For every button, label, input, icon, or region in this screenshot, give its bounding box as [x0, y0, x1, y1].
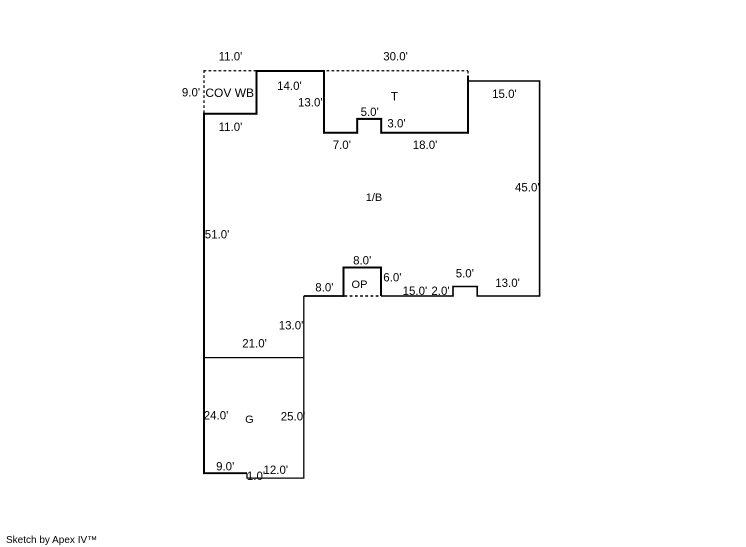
svg-text:1.0': 1.0' — [247, 471, 265, 483]
svg-text:24.0': 24.0' — [204, 410, 229, 422]
svg-text:1/B: 1/B — [366, 192, 383, 204]
svg-text:45.0': 45.0' — [515, 183, 540, 195]
svg-text:11.0': 11.0' — [219, 52, 243, 64]
svg-text:8.0': 8.0' — [353, 255, 371, 267]
svg-text:13.0': 13.0' — [495, 278, 520, 290]
svg-text:G: G — [245, 414, 254, 426]
svg-text:21.0': 21.0' — [242, 339, 267, 351]
svg-text:30.0': 30.0' — [383, 52, 408, 64]
svg-text:OP: OP — [352, 279, 368, 291]
svg-text:13.0': 13.0' — [298, 97, 323, 109]
svg-text:13.0': 13.0' — [279, 321, 304, 333]
svg-text:11.0': 11.0' — [219, 122, 243, 134]
svg-text:25.0': 25.0' — [281, 412, 306, 424]
svg-text:5.0': 5.0' — [456, 269, 474, 281]
svg-text:7.0': 7.0' — [333, 140, 351, 152]
svg-text:9.0': 9.0' — [182, 88, 200, 100]
svg-text:14.0': 14.0' — [277, 81, 302, 93]
svg-text:8.0': 8.0' — [315, 283, 333, 295]
svg-text:15.0': 15.0' — [403, 286, 428, 298]
svg-text:COV WB: COV WB — [205, 86, 254, 100]
svg-text:51.0': 51.0' — [205, 229, 230, 241]
svg-text:12.0': 12.0' — [264, 465, 289, 477]
svg-text:9.0': 9.0' — [216, 462, 234, 474]
svg-text:6.0': 6.0' — [383, 273, 401, 285]
svg-text:2.0': 2.0' — [431, 286, 449, 298]
svg-text:T: T — [391, 89, 399, 103]
svg-text:18.0': 18.0' — [413, 140, 438, 152]
svg-text:3.0': 3.0' — [387, 119, 405, 131]
svg-text:5.0': 5.0' — [361, 107, 379, 119]
svg-text:Sketch by Apex IV™: Sketch by Apex IV™ — [6, 535, 97, 546]
svg-text:15.0': 15.0' — [492, 89, 517, 101]
